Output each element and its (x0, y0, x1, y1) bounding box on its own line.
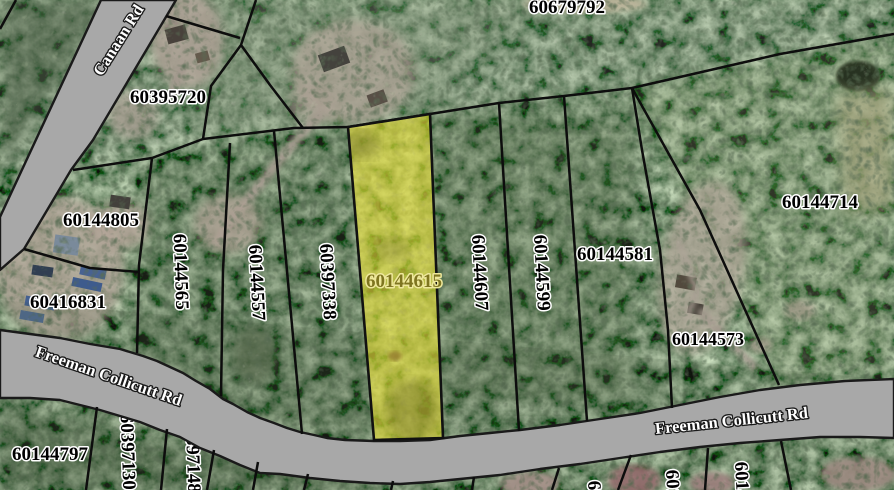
svg-text:60144714: 60144714 (782, 192, 859, 213)
svg-text:60144573: 60144573 (672, 329, 744, 349)
svg-text:60397130: 60397130 (116, 413, 140, 490)
svg-text:60144549: 60144549 (661, 469, 686, 490)
svg-text:60144557: 60144557 (244, 244, 269, 321)
svg-text:60144565: 60144565 (169, 233, 193, 310)
svg-text:60397338: 60397338 (315, 243, 340, 320)
svg-text:60144797: 60144797 (12, 444, 89, 465)
svg-text:60144581: 60144581 (577, 244, 653, 265)
svg-text:60144599: 60144599 (529, 234, 554, 311)
svg-text:60144607: 60144607 (467, 234, 492, 311)
svg-text:60679792: 60679792 (529, 0, 605, 18)
svg-text:60144531: 60144531 (730, 461, 755, 490)
svg-text:60144805: 60144805 (63, 210, 139, 231)
svg-text:60144615: 60144615 (366, 271, 442, 292)
svg-text:60144541: 60144541 (583, 480, 608, 490)
svg-text:60416831: 60416831 (30, 292, 106, 313)
svg-text:60395720: 60395720 (130, 87, 206, 108)
